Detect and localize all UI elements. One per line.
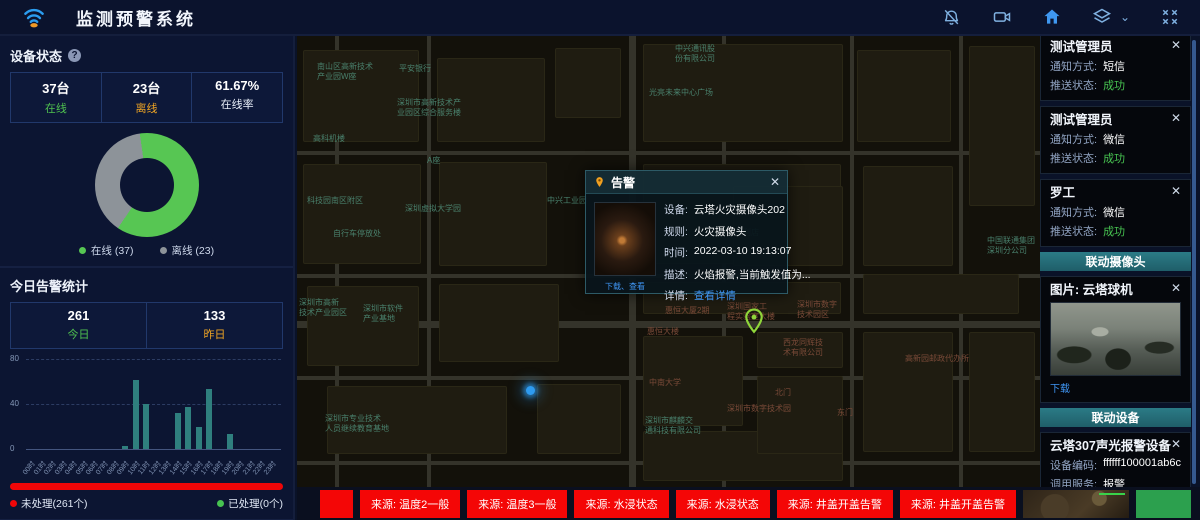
map-road — [297, 151, 1040, 155]
map-place-label: 中兴工业园 — [547, 196, 587, 206]
card-title: 云塔307声光报警设备 — [1050, 438, 1171, 454]
stat-cell: 261 今日 — [11, 303, 146, 348]
field-value: 成功 — [1103, 223, 1125, 239]
map-place-label: 自行车停放处 — [333, 229, 381, 239]
map-place-label: 高科机楼 — [313, 134, 345, 144]
card-title: 测试管理员 — [1050, 112, 1171, 128]
field-label: 详情: — [664, 288, 688, 303]
field-label: 规则: — [664, 224, 688, 239]
stat-label: 昨日 — [147, 326, 282, 342]
notification-card: 测试管理员 ✕ 通知方式: 微信 推送状态: 成功 — [1040, 106, 1191, 174]
camera-card-title: 图片: 云塔球机 — [1050, 282, 1171, 298]
device-location-dot[interactable] — [526, 386, 535, 395]
alarm-ticker: 来源: 温度2一般来源: 温度3一般来源: 水浸状态来源: 水浸状态来源: 井盖… — [297, 487, 1200, 520]
map-place-label: 中南大学 — [649, 378, 681, 388]
map-building — [863, 274, 1019, 314]
notification-card: 罗工 ✕ 通知方式: 微信 推送状态: 成功 — [1040, 179, 1191, 247]
chart-ytick: 80 — [10, 354, 19, 363]
map-place-label: 深圳市高新技术产 业园区综合服务楼 — [397, 98, 461, 118]
field-label: 推送状态: — [1050, 77, 1097, 93]
layers-icon[interactable] — [1092, 7, 1112, 27]
field-label: 通知方式: — [1050, 58, 1097, 74]
map-place-label: 中兴通讯股 份有限公司 — [675, 44, 715, 64]
green-dot-icon — [217, 500, 224, 507]
map-place-label: 高新园邮政代办所 — [905, 354, 969, 364]
map-place-label: 平安银行 — [399, 64, 431, 74]
chart-ytick: 0 — [10, 444, 14, 453]
legend-dot-icon — [160, 247, 167, 254]
app-logo — [20, 3, 48, 31]
chart-bar-10时 — [133, 380, 139, 449]
left-sidebar: 设备状态 ? 37台 在线 23台 离线 61.67% 在线率 在线 (37) … — [0, 36, 295, 520]
field-value: 短信 — [1103, 58, 1125, 74]
field-label: 设备: — [664, 202, 688, 217]
handled-legend: 已处理(0个) — [217, 496, 283, 511]
alarm-popup-title: 告警 — [611, 174, 765, 191]
card-rows: 通知方式: 微信 推送状态: 成功 — [1050, 204, 1181, 239]
stat-value: 61.67% — [192, 78, 282, 93]
legend-item: 在线 (37) — [79, 243, 134, 258]
map-building — [863, 166, 953, 266]
hourly-alarms-bar-chart: 0408000时01时02时03时04时05时06时07时08时09时10时11… — [10, 355, 283, 475]
device-status-title: 设备状态 ? — [10, 46, 283, 65]
camera-card-header: 图片: 云塔球机 ✕ — [1050, 282, 1181, 298]
map-place-label: 惠恒大楼 — [647, 327, 679, 337]
chart-bar-11时 — [143, 404, 149, 449]
close-icon[interactable]: ✕ — [1171, 39, 1181, 51]
map-building — [863, 332, 953, 452]
section-divider — [0, 266, 293, 268]
today-alarms-title: 今日告警统计 — [10, 276, 283, 295]
header-toolbar: ⌄ — [942, 7, 1180, 27]
download-link[interactable]: 下载 — [1050, 380, 1181, 395]
video-camera-icon[interactable] — [992, 7, 1012, 27]
field-label: 设备编码: — [1050, 457, 1097, 473]
field-row: 推送状态: 成功 — [1050, 150, 1181, 166]
ticker-alert[interactable]: 来源: 温度2一般 — [360, 490, 460, 518]
map-place-label: 深圳市麒麟交 通科技有限公司 — [645, 416, 701, 436]
field-row: 通知方式: 短信 — [1050, 58, 1181, 74]
donut-legend: 在线 (37) 离线 (23) — [10, 243, 283, 258]
map-building — [303, 164, 421, 264]
chart-bar-16时 — [196, 427, 202, 450]
alarm-bell-muted-icon[interactable] — [942, 7, 962, 27]
map-place-label: 南山区高新技术 产业园W座 — [317, 62, 373, 82]
alarm-detail-rows: 设备: 云塔火灾摄像头202 规则: 火灾摄像头 时间: 2022-03-10 … — [664, 202, 811, 310]
chart-gridline — [26, 359, 281, 360]
stat-cell: 37台 在线 — [11, 73, 101, 122]
ticker-snapshot-image[interactable] — [1023, 490, 1129, 518]
close-icon[interactable]: ✕ — [1171, 112, 1181, 124]
ticker-alert[interactable]: 来源: 水浸状态 — [676, 490, 770, 518]
chart-bar-17时 — [206, 389, 212, 449]
alarm-thumb-col: 下载、查看 — [594, 202, 656, 310]
legend-item: 离线 (23) — [160, 243, 215, 258]
field-label: 通知方式: — [1050, 204, 1097, 220]
stat-cell: 133 昨日 — [146, 303, 282, 348]
legend-dot-icon — [79, 247, 86, 254]
field-label: 时间: — [664, 245, 688, 260]
map-place-label: 光亮未来中心广场 — [649, 88, 713, 98]
map-place-label: 深圳虚拟大学园 — [405, 204, 461, 214]
close-icon[interactable]: ✕ — [770, 176, 780, 188]
map-place-label: 深圳市专业技术 人员继续教育基地 — [325, 414, 389, 434]
fullscreen-icon[interactable] — [1160, 7, 1180, 27]
field-label: 推送状态: — [1050, 223, 1097, 239]
close-icon[interactable]: ✕ — [1171, 185, 1181, 197]
right-scrollbar[interactable] — [1192, 40, 1196, 484]
unhandled-progress-bar — [10, 483, 283, 490]
map-place-label: A座 — [427, 156, 440, 166]
chart-bar-14时 — [175, 413, 181, 449]
map-place-label: 科技园南区附区 — [307, 196, 363, 206]
linked-device-banner[interactable]: 联动设备 — [1040, 408, 1191, 427]
field-value: 成功 — [1103, 77, 1125, 93]
card-title: 测试管理员 — [1050, 39, 1171, 55]
chart-bar-15时 — [185, 407, 191, 449]
camera-image-card: 图片: 云塔球机 ✕ 下载 — [1040, 276, 1191, 403]
field-value: 微信 — [1103, 131, 1125, 147]
ticker-alert-partial — [320, 490, 353, 518]
map-building — [757, 376, 843, 454]
map-road — [850, 36, 854, 487]
field-row: 设备编码: ffffff100001ab6c — [1050, 457, 1181, 473]
map-place-label: 北门 — [775, 388, 791, 398]
legend-label: 在线 (37) — [91, 243, 134, 258]
map-place-label: 西龙同辉技 术有限公司 — [783, 338, 823, 358]
map-place-label: 深圳市数字技术园 — [727, 404, 791, 414]
legend-label: 离线 (23) — [172, 243, 215, 258]
field-value: 微信 — [1103, 204, 1125, 220]
close-icon[interactable]: ✕ — [1171, 282, 1181, 294]
stat-cell: 23台 离线 — [101, 73, 192, 122]
stat-cell: 61.67% 在线率 — [191, 73, 282, 122]
pin-icon — [593, 176, 606, 189]
chart-bar-19时 — [227, 434, 233, 449]
field-row: 推送状态: 成功 — [1050, 223, 1181, 239]
chart-bar-09时 — [122, 446, 128, 449]
map-building — [555, 48, 621, 118]
field-value: 2022-03-10 19:13:07 — [694, 245, 792, 260]
stat-value: 261 — [11, 308, 146, 323]
notification-card: 测试管理员 ✕ 通知方式: 短信 推送状态: 成功 — [1040, 33, 1191, 101]
ticker-green-block — [1136, 490, 1191, 518]
map-place-label: 东门 — [837, 408, 853, 418]
device-status-title-text: 设备状态 — [10, 46, 62, 65]
camera-photo[interactable] — [1050, 302, 1181, 376]
map-place-label: 中国联通集团 深圳分公司 — [987, 236, 1035, 256]
map-building — [969, 46, 1035, 206]
device-status-stats: 37台 在线 23台 离线 61.67% 在线率 — [10, 72, 283, 123]
app-header: 监测预警系统 ⌄ — [0, 0, 1200, 36]
device-status-donut-wrap — [10, 133, 283, 237]
map-building — [439, 162, 547, 266]
right-sidebar: 测试管理员 ✕ 通知方式: 短信 推送状态: 成功 测试管理员 ✕ 通知方式: … — [1040, 33, 1191, 520]
stat-label: 在线率 — [192, 96, 282, 112]
card-header: 测试管理员 ✕ — [1050, 112, 1181, 128]
map-place-label: 深圳市高新 技术产业园区 — [299, 298, 347, 318]
home-icon[interactable] — [1042, 7, 1062, 27]
stat-value: 23台 — [102, 78, 192, 97]
detail-link[interactable]: 查看详情 — [694, 288, 736, 303]
ticker-alert[interactable]: 来源: 井盖开盖告警 — [777, 490, 893, 518]
field-label: 推送状态: — [1050, 150, 1097, 166]
alarm-popup-header[interactable]: 告警 ✕ — [586, 171, 787, 194]
alarm-popup-body: 下载、查看 设备: 云塔火灾摄像头202 规则: 火灾摄像头 时间: 2022-… — [586, 194, 787, 314]
card-header: 云塔307声光报警设备 ✕ — [1050, 438, 1181, 454]
handled-label: 已处理(0个) — [228, 496, 283, 511]
field-value: 云塔火灾摄像头202 — [694, 202, 785, 217]
map-building — [857, 50, 951, 142]
stat-label: 离线 — [102, 100, 192, 116]
field-row: 设备: 云塔火灾摄像头202 — [664, 202, 811, 217]
field-row: 通知方式: 微信 — [1050, 131, 1181, 147]
map-place-label: 深圳市软件 产业基地 — [363, 304, 403, 324]
field-value: 火灾摄像头 — [694, 224, 747, 239]
chart-ytick: 40 — [10, 399, 19, 408]
map-building — [969, 332, 1035, 452]
red-dot-icon — [10, 500, 17, 507]
field-row: 通知方式: 微信 — [1050, 204, 1181, 220]
today-alarms-title-text: 今日告警统计 — [10, 276, 88, 295]
field-row: 推送状态: 成功 — [1050, 77, 1181, 93]
alarm-thumb-links[interactable]: 下载、查看 — [594, 281, 656, 292]
device-status-donut-chart — [95, 133, 199, 237]
stat-label: 今日 — [11, 326, 146, 342]
field-value: 火焰报警,当前触发值为... — [694, 267, 811, 282]
field-row: 描述: 火焰报警,当前触发值为... — [664, 267, 811, 282]
field-label: 通知方式: — [1050, 131, 1097, 147]
alarm-popup: 告警 ✕ 下载、查看 设备: 云塔火灾摄像头202 规则: 火灾摄像头 时间: … — [585, 170, 788, 294]
card-title: 罗工 — [1050, 185, 1171, 201]
field-row: 规则: 火灾摄像头 — [664, 224, 811, 239]
stat-label: 在线 — [11, 100, 101, 116]
unhandled-label: 未处理(261个) — [21, 496, 88, 511]
unhandled-legend: 未处理(261个) — [10, 496, 88, 511]
card-header: 罗工 ✕ — [1050, 185, 1181, 201]
page-title: 监测预警系统 — [76, 5, 196, 30]
map-building — [439, 284, 559, 362]
close-icon[interactable]: ✕ — [1171, 438, 1181, 450]
chevron-down-icon[interactable]: ⌄ — [1120, 10, 1130, 24]
ticker-alert[interactable]: 来源: 井盖开盖告警 — [900, 490, 1016, 518]
alarm-snapshot-image[interactable] — [594, 202, 656, 276]
stat-value: 37台 — [11, 78, 101, 97]
map-road — [959, 36, 963, 487]
chart-gridline — [26, 449, 281, 450]
field-row: 详情: 查看详情 — [664, 288, 811, 303]
card-rows: 通知方式: 微信 推送状态: 成功 — [1050, 131, 1181, 166]
card-header: 测试管理员 ✕ — [1050, 39, 1181, 55]
field-label: 描述: — [664, 267, 688, 282]
chart-gridline — [26, 404, 281, 405]
help-icon[interactable]: ? — [68, 49, 81, 62]
field-value: ffffff100001ab6c — [1103, 457, 1181, 473]
map-building — [537, 384, 621, 454]
field-value: 成功 — [1103, 150, 1125, 166]
card-rows: 通知方式: 短信 推送状态: 成功 — [1050, 58, 1181, 93]
linked-camera-banner[interactable]: 联动摄像头 — [1040, 252, 1191, 271]
notification-cards: 测试管理员 ✕ 通知方式: 短信 推送状态: 成功 测试管理员 ✕ 通知方式: … — [1040, 33, 1191, 247]
ticker-alert[interactable]: 来源: 水浸状态 — [574, 490, 668, 518]
ticker-alert[interactable]: 来源: 温度3一般 — [467, 490, 567, 518]
progress-legend: 未处理(261个) 已处理(0个) — [10, 496, 283, 511]
stat-value: 133 — [147, 308, 282, 323]
field-row: 时间: 2022-03-10 19:13:07 — [664, 245, 811, 260]
today-alarms-stats: 261 今日 133 昨日 — [10, 302, 283, 349]
